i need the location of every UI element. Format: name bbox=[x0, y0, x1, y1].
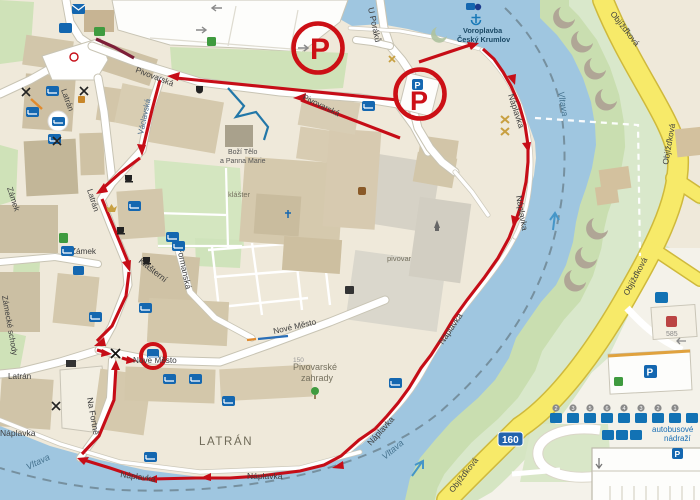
svg-text:autobusové: autobusové bbox=[652, 425, 694, 434]
svg-text:160: 160 bbox=[502, 435, 519, 446]
svg-text:Náplavka: Náplavka bbox=[0, 428, 36, 438]
svg-text:Voroplavba: Voroplavba bbox=[463, 26, 503, 35]
svg-text:Latrán: Latrán bbox=[8, 372, 32, 381]
svg-text:3: 3 bbox=[639, 406, 642, 412]
svg-text:585: 585 bbox=[666, 331, 678, 338]
svg-text:5: 5 bbox=[588, 406, 591, 412]
svg-text:Náplavka: Náplavka bbox=[247, 471, 283, 481]
svg-text:P: P bbox=[647, 368, 654, 379]
svg-text:LATRÁN: LATRÁN bbox=[199, 435, 253, 448]
svg-text:Český Krumlov: Český Krumlov bbox=[457, 35, 511, 44]
svg-text:4: 4 bbox=[622, 406, 625, 412]
svg-text:3: 3 bbox=[571, 406, 574, 412]
svg-text:6: 6 bbox=[605, 406, 608, 412]
svg-text:klášter: klášter bbox=[228, 190, 251, 199]
svg-text:P: P bbox=[310, 33, 330, 66]
svg-text:2: 2 bbox=[554, 406, 557, 412]
svg-text:2: 2 bbox=[656, 406, 659, 412]
svg-text:Zámek: Zámek bbox=[71, 247, 97, 256]
svg-text:nádraží: nádraží bbox=[664, 434, 691, 443]
svg-text:a Panna Marie: a Panna Marie bbox=[220, 158, 266, 165]
svg-text:pivovar: pivovar bbox=[387, 254, 412, 263]
svg-text:P: P bbox=[675, 449, 681, 459]
svg-text:zahrady: zahrady bbox=[301, 373, 334, 383]
svg-text:Boží Tělo: Boží Tělo bbox=[228, 149, 258, 156]
svg-text:P: P bbox=[410, 86, 428, 116]
svg-text:150: 150 bbox=[293, 357, 304, 364]
svg-text:1: 1 bbox=[673, 406, 676, 412]
